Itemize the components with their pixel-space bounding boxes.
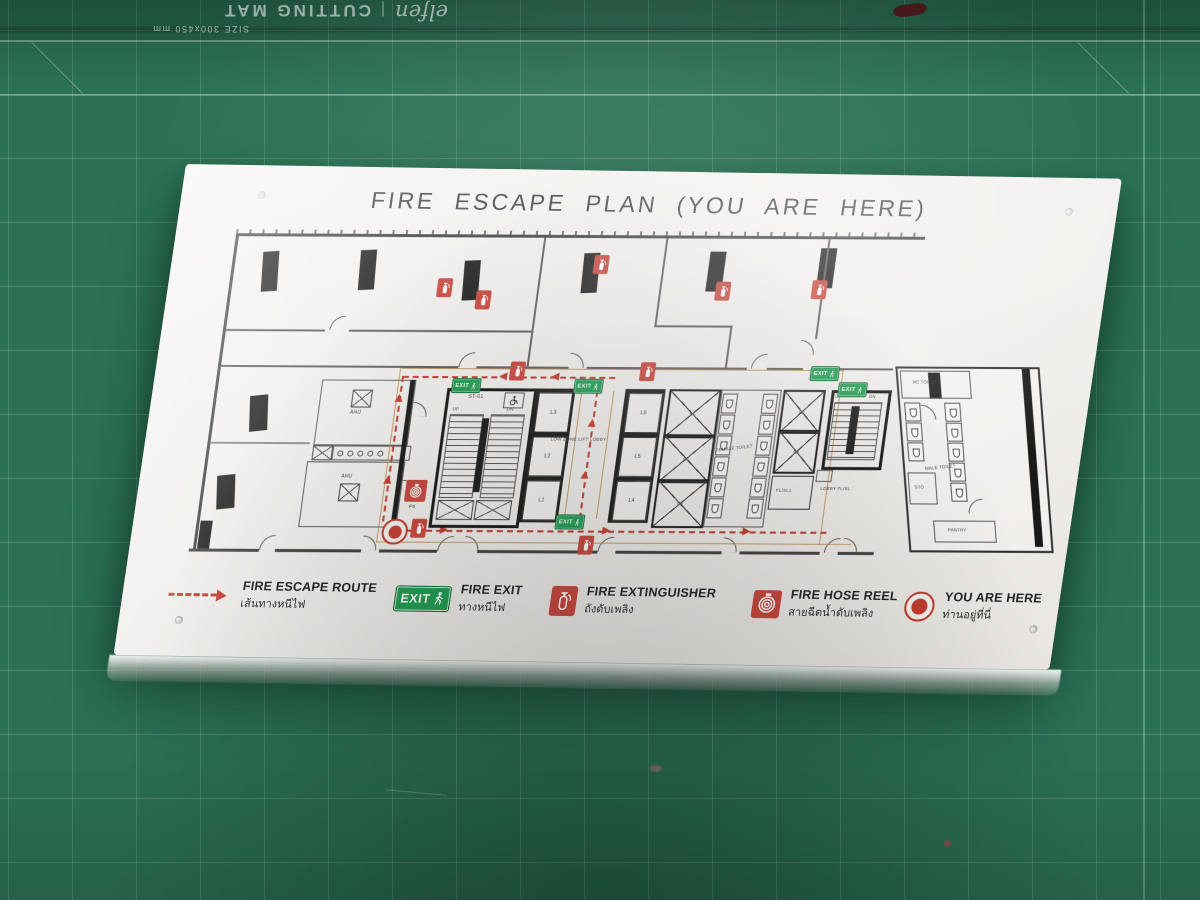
- louver-dot: [337, 450, 344, 456]
- partition-wall: [225, 329, 325, 332]
- ahu-room-label: AHU: [350, 410, 362, 416]
- toilet-fixture: [950, 409, 958, 418]
- ahu-unit-symbol: [351, 390, 373, 408]
- fire-extinguisher-icon: [436, 278, 454, 297]
- door-arc: [437, 536, 454, 551]
- exit-sign-label: EXIT: [400, 591, 432, 605]
- partition-wall: [209, 442, 309, 444]
- door-arc: [411, 402, 428, 417]
- shaft-symbol: [435, 500, 474, 520]
- toilet-fixture: [910, 408, 918, 417]
- mat-frame-line: [0, 40, 1200, 42]
- door-arc: [920, 405, 936, 420]
- shaft-label: H4: [677, 501, 684, 506]
- exterior-wall-bottom: [615, 551, 721, 554]
- toilet-stall: [944, 403, 961, 422]
- exterior-wall-bottom: [189, 548, 259, 551]
- lift-car-l2: L2: [528, 436, 568, 476]
- pantry-label: PANTRY: [948, 528, 967, 533]
- door-arc: [458, 352, 475, 367]
- legend-label: FIRE HOSE REEL: [790, 588, 899, 604]
- shaft-label: H6: [689, 411, 696, 416]
- toilet-stall: [907, 442, 924, 461]
- running-man-icon: [593, 382, 600, 390]
- partition-wall: [725, 326, 733, 368]
- mat-size-label: SIZE 300x450 mm: [118, 24, 448, 34]
- route-arrow: [580, 471, 589, 479]
- door-arc: [722, 537, 739, 552]
- red-smudge: [944, 840, 951, 847]
- toilet-fixture: [711, 504, 719, 513]
- lift-car-l3: L3: [534, 393, 574, 433]
- column: [216, 474, 235, 510]
- screw-hole: [174, 616, 183, 624]
- storage-label: STO: [914, 484, 924, 489]
- lift-shaft-h6: H6: [663, 389, 722, 438]
- column: [261, 251, 280, 292]
- shaft-label: H5: [683, 456, 690, 461]
- door-arc: [463, 536, 480, 551]
- exit-badge: EXIT: [837, 382, 868, 397]
- lift-lobby-label: LOW ZONE LIFT LOBBY: [550, 437, 606, 442]
- route-arrow: [499, 372, 508, 380]
- toilet-stall: [761, 394, 779, 414]
- column: [197, 521, 213, 549]
- escape-route-dashed: [406, 530, 827, 534]
- legend-label-thai: ทางหนีไฟ: [457, 597, 521, 616]
- stair-dn-label: DN: [869, 394, 876, 399]
- lift-shaft-h1: H1: [772, 430, 820, 474]
- shaft-symbol: [473, 500, 512, 520]
- toilet-fixture: [954, 469, 962, 478]
- wheelchair-icon: [508, 395, 519, 405]
- lift-label: L3: [550, 410, 557, 416]
- fire-extinguisher-icon: [548, 585, 578, 615]
- mat-label: SIZE 300x450 mm elfen | CUTTING MAT: [118, 0, 448, 34]
- route-arrow: [551, 373, 560, 381]
- toilet-fixture: [765, 400, 773, 409]
- louver-symbol: [311, 445, 333, 460]
- sign-title: FIRE ESCAPE PLAN (YOU ARE HERE): [179, 184, 1119, 226]
- running-man-icon: [857, 386, 864, 394]
- route-arrow: [383, 476, 392, 484]
- toilet-stall: [755, 436, 773, 456]
- duct-box: [815, 470, 833, 482]
- fire-hose-reel-icon: [404, 480, 428, 502]
- fire-escape-plan-sign: FIRE ESCAPE PLAN (YOU ARE HERE): [114, 164, 1122, 670]
- you-are-here-icon: [902, 591, 936, 621]
- legend-item-escape-route: FIRE ESCAPE ROUTE เส้นทางหนีไฟ: [166, 578, 378, 614]
- ahu-room-label: AHU: [341, 473, 353, 479]
- partition-wall: [654, 238, 668, 326]
- exit-badge-label: EXIT: [841, 387, 856, 393]
- door-arc: [597, 537, 614, 552]
- door-arc: [361, 535, 378, 550]
- toilet-fixture: [751, 505, 759, 514]
- exterior-wall-bottom: [379, 549, 437, 552]
- toilet-stall: [749, 478, 767, 498]
- floor-plan: AHU AHU: [177, 229, 1086, 569]
- exit-badge: EXIT: [554, 514, 585, 529]
- ahu-unit-symbol: [338, 483, 360, 501]
- toilet-fixture: [760, 442, 768, 451]
- column: [249, 394, 268, 432]
- route-arrow: [602, 527, 611, 535]
- right-wing: HC TOILET MALE TOILET STO PANTRY: [895, 366, 1053, 553]
- door-arc: [568, 353, 585, 368]
- lift-label: L4: [628, 498, 635, 504]
- lift-label: L6: [640, 410, 647, 416]
- door-arc: [751, 354, 768, 369]
- hc-toilet-label: HC TOILET: [912, 380, 937, 385]
- mat-brand-logo: elfen: [395, 0, 448, 24]
- legend-label: YOU ARE HERE: [944, 590, 1043, 605]
- fire-extinguisher-icon: [714, 282, 732, 301]
- screw-hole: [1029, 625, 1038, 633]
- mat-product-name: CUTTING MAT: [222, 0, 371, 20]
- toilet-stall: [709, 477, 727, 497]
- lift-shaft-h4: H4: [651, 479, 710, 528]
- toilet-fixture: [913, 448, 921, 457]
- toilet-stall: [946, 423, 963, 442]
- toilet-fixture: [951, 429, 959, 438]
- exit-badge: EXIT: [809, 366, 840, 381]
- toilet-fixture: [762, 421, 770, 430]
- exit-badge: EXIT: [451, 378, 482, 393]
- exit-badge-label: EXIT: [558, 519, 573, 525]
- toilet-stall: [904, 402, 921, 421]
- exit-badge-label: EXIT: [455, 383, 470, 389]
- pink-smudge: [650, 765, 662, 772]
- legend-label: FIRE EXTINGUISHER: [586, 584, 717, 600]
- column: [358, 250, 377, 291]
- legend-label: FIRE ESCAPE ROUTE: [242, 579, 378, 595]
- toilet-stall: [706, 498, 724, 518]
- louver-dot: [347, 450, 354, 456]
- toilet-stall: [752, 457, 770, 477]
- route-arrow: [394, 394, 403, 402]
- stair-dn-label: DN: [506, 406, 514, 411]
- lift-label: L2: [544, 453, 551, 459]
- toilet-stall: [712, 456, 730, 476]
- hose-reel-fs-label: FS: [409, 504, 416, 509]
- lift-car-l4: L4: [612, 481, 652, 521]
- shaft-label: H1: [793, 449, 800, 454]
- legend-label-thai: ท่านอยู่ที่นี่: [941, 605, 1041, 624]
- running-man-icon: [829, 370, 836, 378]
- door-arc: [967, 499, 983, 514]
- door-arc: [842, 538, 859, 553]
- route-arrow: [742, 527, 751, 535]
- toilet-stall: [947, 443, 964, 462]
- toilet-fixture: [714, 483, 722, 492]
- louver-dot: [377, 450, 384, 456]
- wing-outer-wall: [1022, 369, 1044, 547]
- lift-car-l6: L6: [624, 393, 664, 433]
- lift-label: L1: [538, 497, 545, 503]
- toilet-fixture: [722, 420, 730, 429]
- fire-extinguisher-icon: [509, 361, 527, 380]
- legend-item-hose-reel: FIRE HOSE REEL สายฉีดน้ำดับเพลิง: [750, 587, 899, 622]
- legend-label-thai: สายฉีดน้ำดับเพลิง: [787, 603, 897, 623]
- toilet-fixture: [911, 428, 919, 437]
- stair-up-label: UP: [452, 406, 459, 411]
- fire-extinguisher-icon: [639, 362, 657, 381]
- fire-lift-lobby-label: LOBBY FL/SL: [820, 486, 850, 491]
- partition-wall: [654, 325, 732, 327]
- toilet-fixture: [757, 463, 765, 472]
- lift-shaft-h5: H5: [657, 434, 716, 483]
- running-man-icon: [574, 518, 581, 526]
- fire-extinguisher-icon: [474, 290, 492, 309]
- fire-extinguisher-icon: [592, 255, 610, 274]
- fire-extinguisher-icon: [577, 536, 595, 555]
- fire-extinguisher-icon: [810, 280, 828, 299]
- partition-wall: [349, 330, 532, 333]
- door-arc: [799, 340, 816, 355]
- shaft-label: H2: [799, 409, 806, 414]
- legend-item-you-are-here: YOU ARE HERE ท่านอยู่ที่นี่: [902, 589, 1043, 624]
- fire-lift-label: FL/SL1: [776, 488, 792, 493]
- door-arc: [824, 538, 841, 553]
- toilet-stall: [721, 394, 739, 414]
- mat-frame-line: [1143, 0, 1145, 900]
- toilet-stall: [718, 414, 736, 434]
- louver-dot: [357, 450, 364, 456]
- toilet-stall: [906, 422, 923, 441]
- hose-reel-icon: [750, 589, 782, 617]
- legend-item-fire-exit: EXIT FIRE EXIT ทางหนีไฟ: [392, 581, 523, 616]
- toilet-fixture: [725, 400, 733, 409]
- legend-item-fire-extinguisher: FIRE EXTINGUISHER ถังดับเพลิง: [548, 584, 717, 620]
- legend-label-thai: ถังดับเพลิง: [583, 599, 715, 619]
- running-man-icon: [471, 382, 478, 390]
- route-arrow-icon: [168, 588, 234, 601]
- escape-route-dashed: [579, 391, 599, 519]
- toilet-fixture: [956, 489, 964, 498]
- toilet-stall: [950, 483, 967, 502]
- toilet-fixture: [953, 449, 961, 458]
- toilet-stall: [758, 415, 776, 435]
- lift-car-l5: L5: [618, 437, 658, 477]
- toilet-stall: [746, 499, 764, 519]
- lift-label: L5: [634, 454, 641, 460]
- lift-shaft-h2: H2: [778, 390, 826, 434]
- door-arc: [329, 316, 346, 331]
- exit-badge: EXIT: [573, 379, 604, 394]
- louver-dot: [367, 450, 374, 456]
- lift-car-l1: L1: [522, 480, 562, 520]
- exit-sign-icon: EXIT: [393, 585, 453, 612]
- door-arc: [259, 535, 276, 550]
- partition-wall: [527, 238, 547, 367]
- exit-badge-label: EXIT: [577, 383, 592, 389]
- mat-label-divider: |: [381, 0, 385, 18]
- mat-frame-line: [0, 94, 1200, 96]
- legend-label: FIRE EXIT: [460, 582, 524, 597]
- toilet-fixture: [717, 462, 725, 471]
- exterior-wall-bottom: [275, 549, 361, 552]
- exit-badge-label: EXIT: [813, 371, 828, 377]
- exterior-wall-bottom: [739, 551, 819, 554]
- fire-extinguisher-icon: [410, 519, 428, 538]
- running-man-icon: [432, 591, 445, 606]
- toilet-fixture: [754, 484, 762, 493]
- legend-label-thai: เส้นทางหนีไฟ: [239, 594, 376, 614]
- route-arrow: [587, 419, 596, 427]
- stair-label: ST-01: [468, 394, 484, 400]
